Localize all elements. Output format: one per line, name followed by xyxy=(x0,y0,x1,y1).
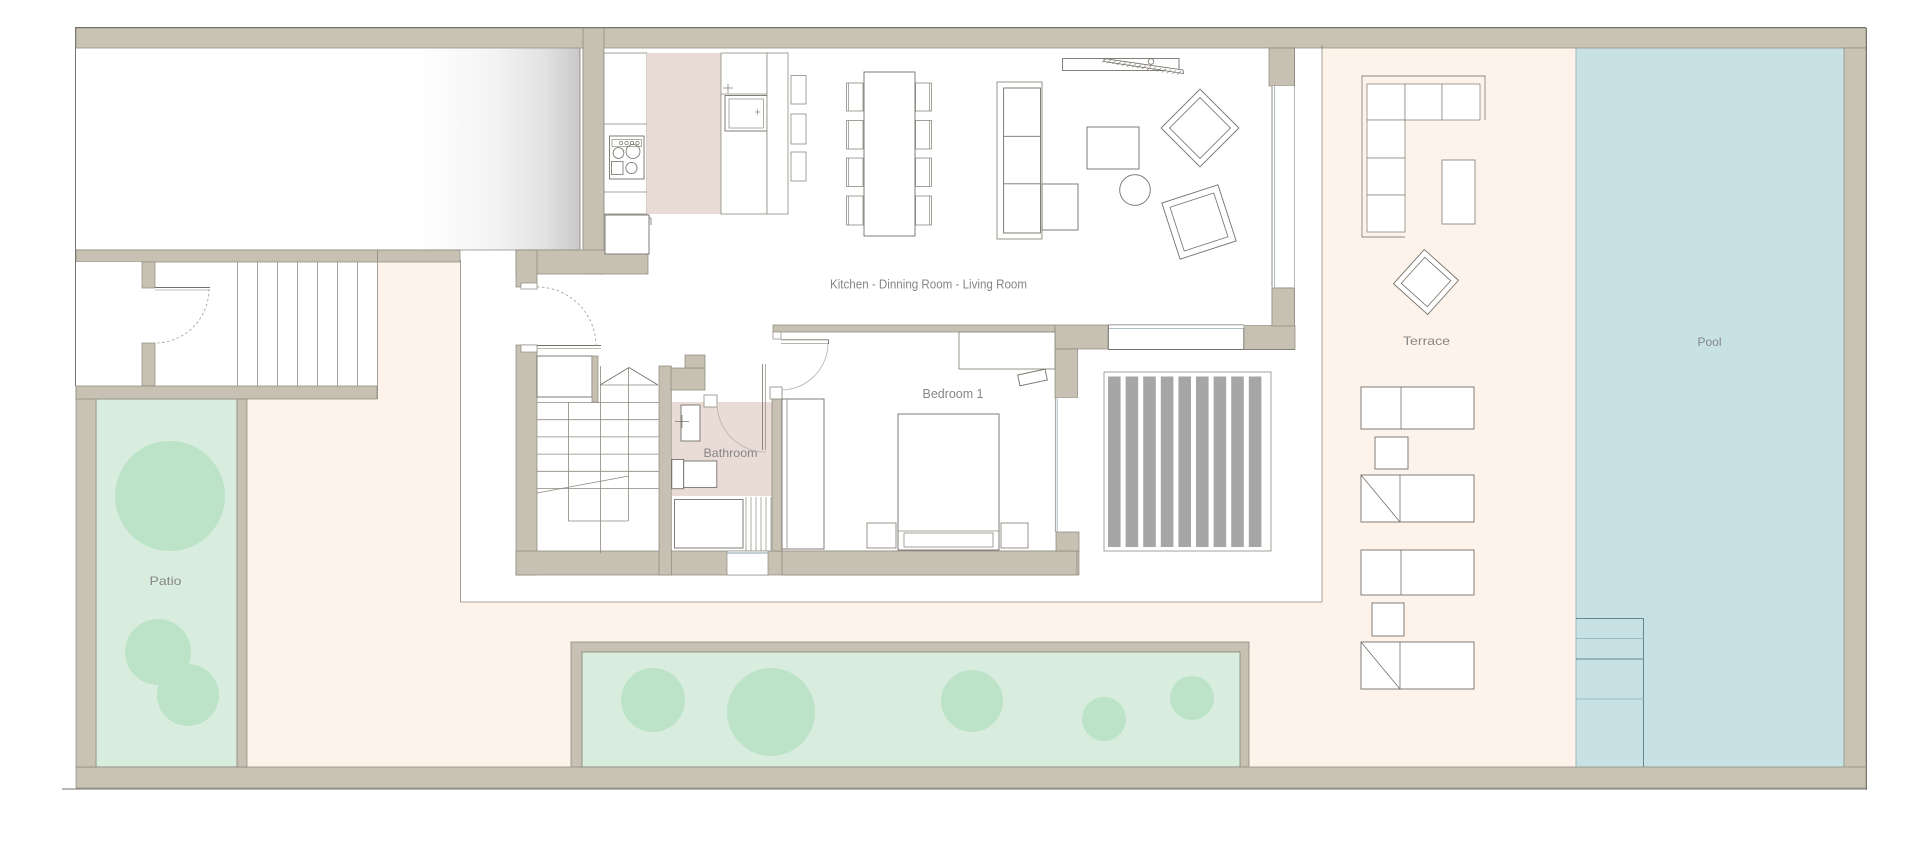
svg-text:Terrace: Terrace xyxy=(1403,334,1450,348)
svg-text:Bathroom: Bathroom xyxy=(704,446,758,460)
svg-text:Patio: Patio xyxy=(150,574,182,588)
svg-text:Kitchen - Dinning Room - Livin: Kitchen - Dinning Room - Living Room xyxy=(830,277,1027,292)
svg-text:Pool: Pool xyxy=(1698,335,1722,349)
svg-text:Bedroom 1: Bedroom 1 xyxy=(923,386,984,401)
